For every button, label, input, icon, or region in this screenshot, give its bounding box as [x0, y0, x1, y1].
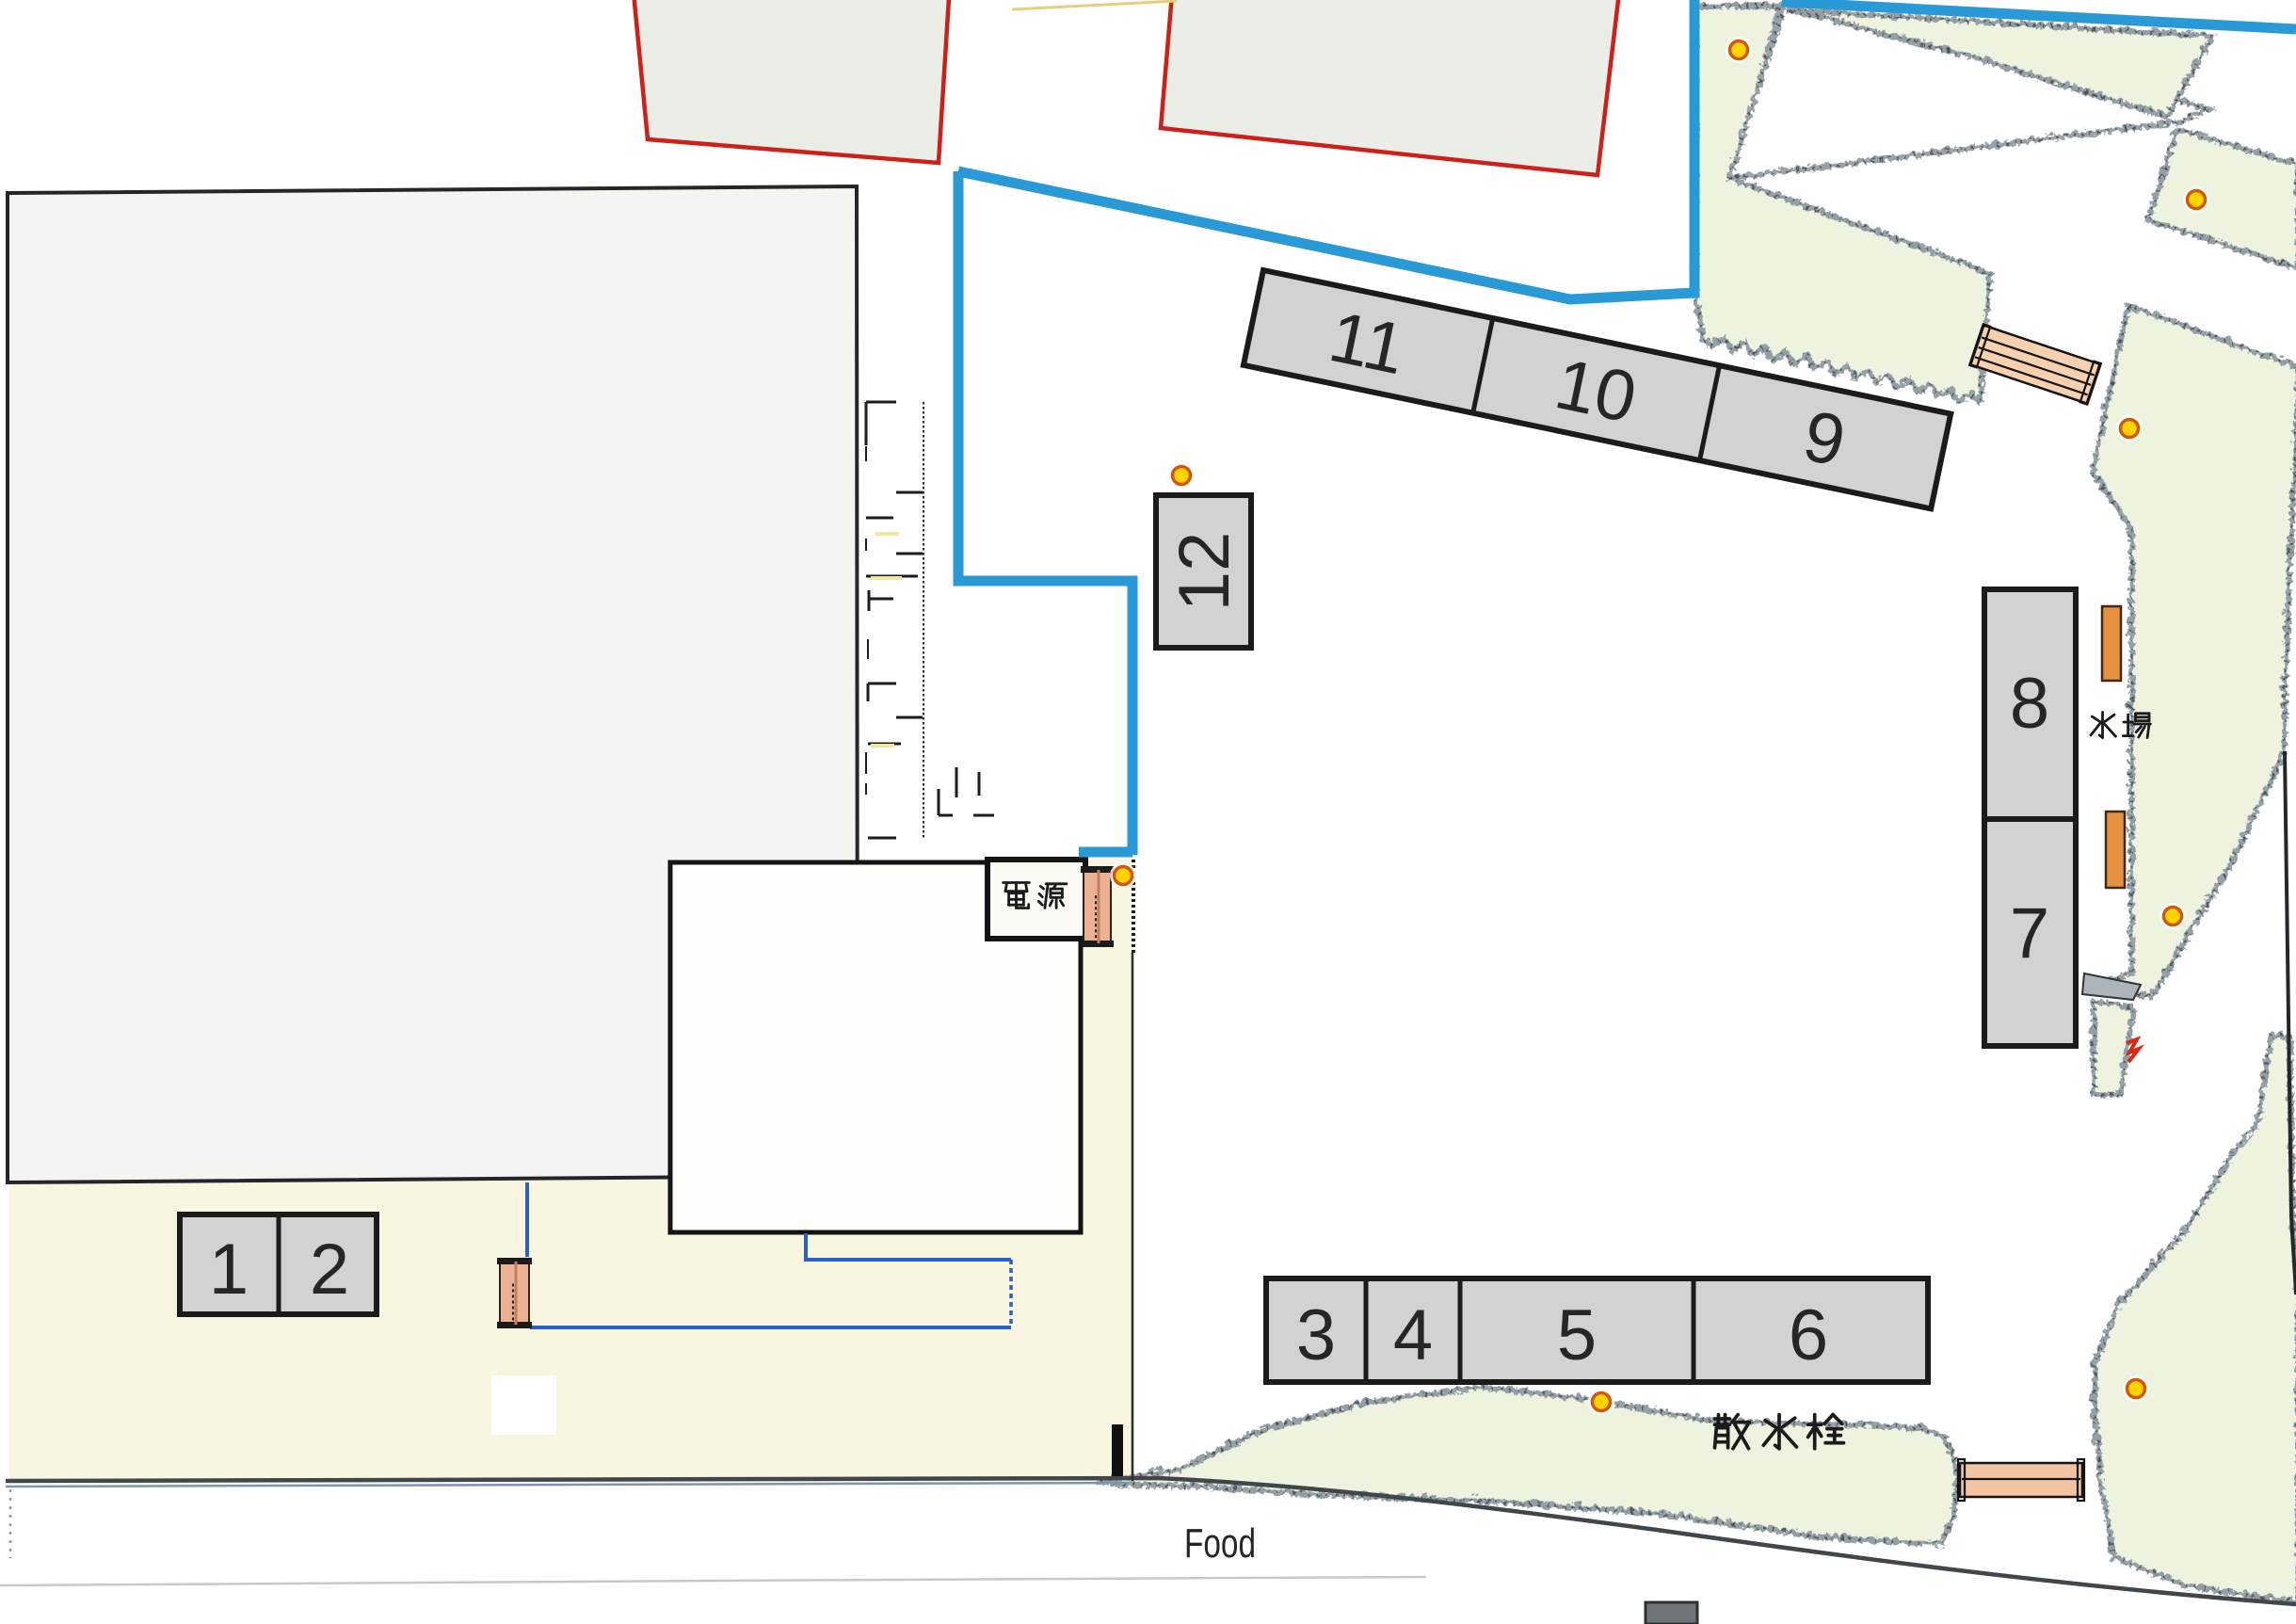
- svg-text:3: 3: [1296, 1295, 1336, 1375]
- svg-text:12: 12: [1164, 532, 1244, 612]
- svg-text:6: 6: [1789, 1295, 1828, 1375]
- svg-text:5: 5: [1557, 1295, 1597, 1375]
- svg-text:7: 7: [2010, 893, 2049, 973]
- svg-text:10: 10: [1549, 344, 1643, 438]
- svg-text:8: 8: [2010, 664, 2049, 744]
- svg-text:2: 2: [310, 1230, 349, 1310]
- svg-text:1: 1: [209, 1230, 249, 1310]
- svg-text:4: 4: [1393, 1295, 1433, 1375]
- svg-text:Food: Food: [1184, 1520, 1256, 1567]
